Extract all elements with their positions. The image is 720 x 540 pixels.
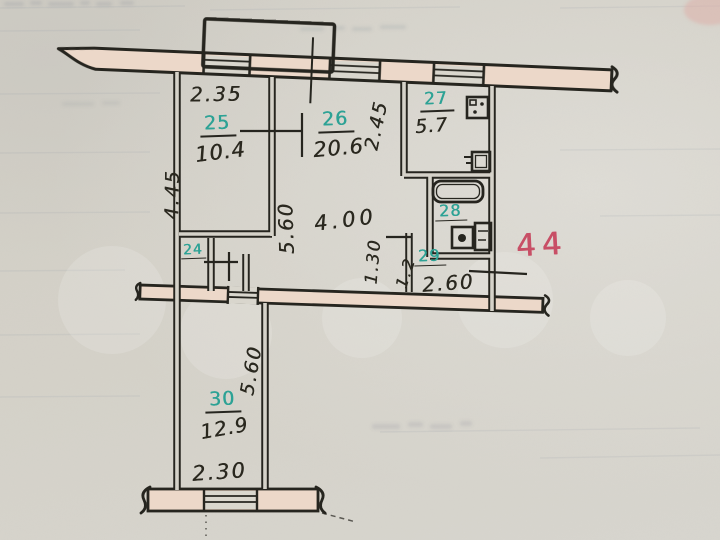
dim-room25-depth: 4.45: [163, 159, 183, 229]
room-24-number: 24: [181, 243, 206, 260]
room-28-number: 28: [435, 202, 468, 221]
room-27-area: 5.7: [414, 114, 449, 138]
room-27-label: 27 5.7: [420, 89, 454, 137]
dim-room25-width: 2.35: [190, 84, 243, 105]
plan-drawing: [0, 0, 720, 540]
room-26-number: 26: [318, 107, 355, 133]
room-30-area: 12.9: [198, 412, 250, 444]
room-24-label: 24: [181, 241, 206, 259]
room-26-label: 26 20.6: [318, 108, 364, 160]
dim-room26-depth: 5.60: [275, 190, 298, 267]
room-25-area: 10.4: [194, 137, 247, 167]
dim-hall-width: 2.60: [421, 271, 475, 295]
room-28-label: 28: [435, 203, 467, 221]
floor-plan-photo: 2.35 25 10.4 4.45 26 20.6 2.45 5.60 4.00…: [0, 0, 720, 540]
room-25-number: 25: [200, 111, 237, 137]
room-26-area: 20.6: [312, 134, 365, 162]
dim-room30-width: 2.30: [191, 460, 247, 485]
red-mark-44: 44: [515, 229, 568, 263]
room-27-number: 27: [420, 88, 454, 112]
room-25-label: 25 10.4: [200, 112, 246, 164]
window-opening: [204, 491, 257, 509]
